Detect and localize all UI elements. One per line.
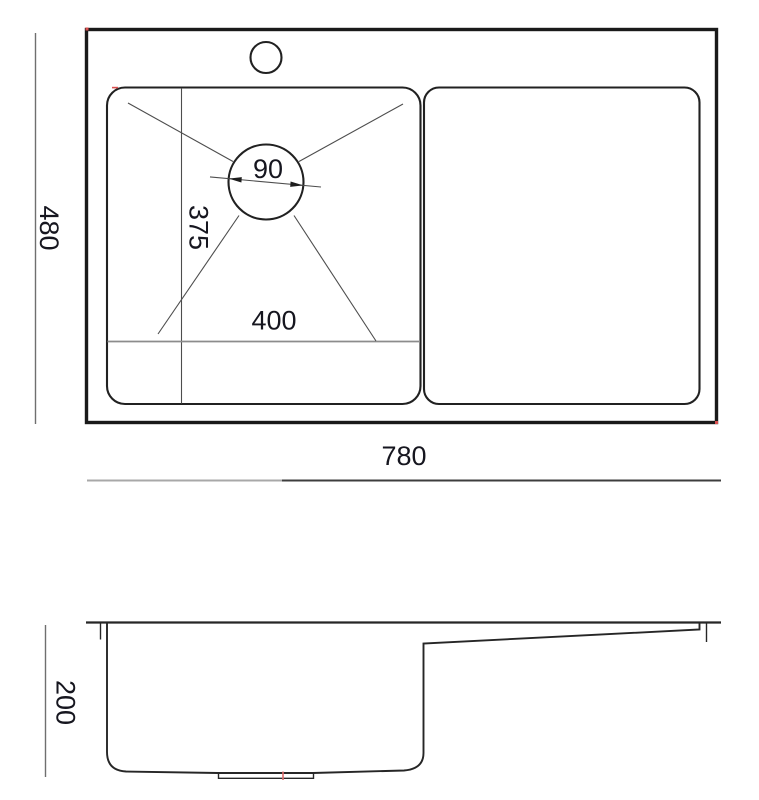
artifact-outer-bottom-right — [715, 421, 718, 424]
top-view: 90 400 375 — [87, 30, 717, 423]
dim-780-label: 780 — [381, 441, 426, 471]
bowl-outline — [107, 88, 421, 405]
bowl-slope-line-top-left — [128, 103, 233, 162]
bowl-width-label: 400 — [251, 306, 296, 336]
drainboard-outline — [424, 88, 700, 405]
bowl-slope-line-bottom-right — [294, 216, 376, 342]
bowl-depth-label: 375 — [184, 205, 214, 250]
side-bowl-profile — [107, 624, 700, 774]
artifact-bowl-corner — [112, 87, 118, 89]
bowl-slope-line-top-right — [299, 104, 403, 162]
drain-dim-arrow-left — [229, 177, 242, 182]
dim-overall-width: 780 — [87, 441, 721, 481]
dim-overall-depth: 480 — [34, 33, 64, 424]
sink-technical-drawing: 90 400 375 480 780 — [0, 0, 759, 800]
dim-480-label: 480 — [34, 205, 64, 250]
drain-diameter-label: 90 — [253, 154, 283, 184]
faucet-hole — [251, 42, 282, 73]
dim-200-label: 200 — [51, 680, 81, 725]
drain-dim-arrow-right — [290, 182, 303, 187]
drawing-canvas: 90 400 375 480 780 — [0, 0, 759, 800]
artifact-outer-top-left — [86, 28, 89, 31]
side-view: 200 — [46, 623, 722, 781]
